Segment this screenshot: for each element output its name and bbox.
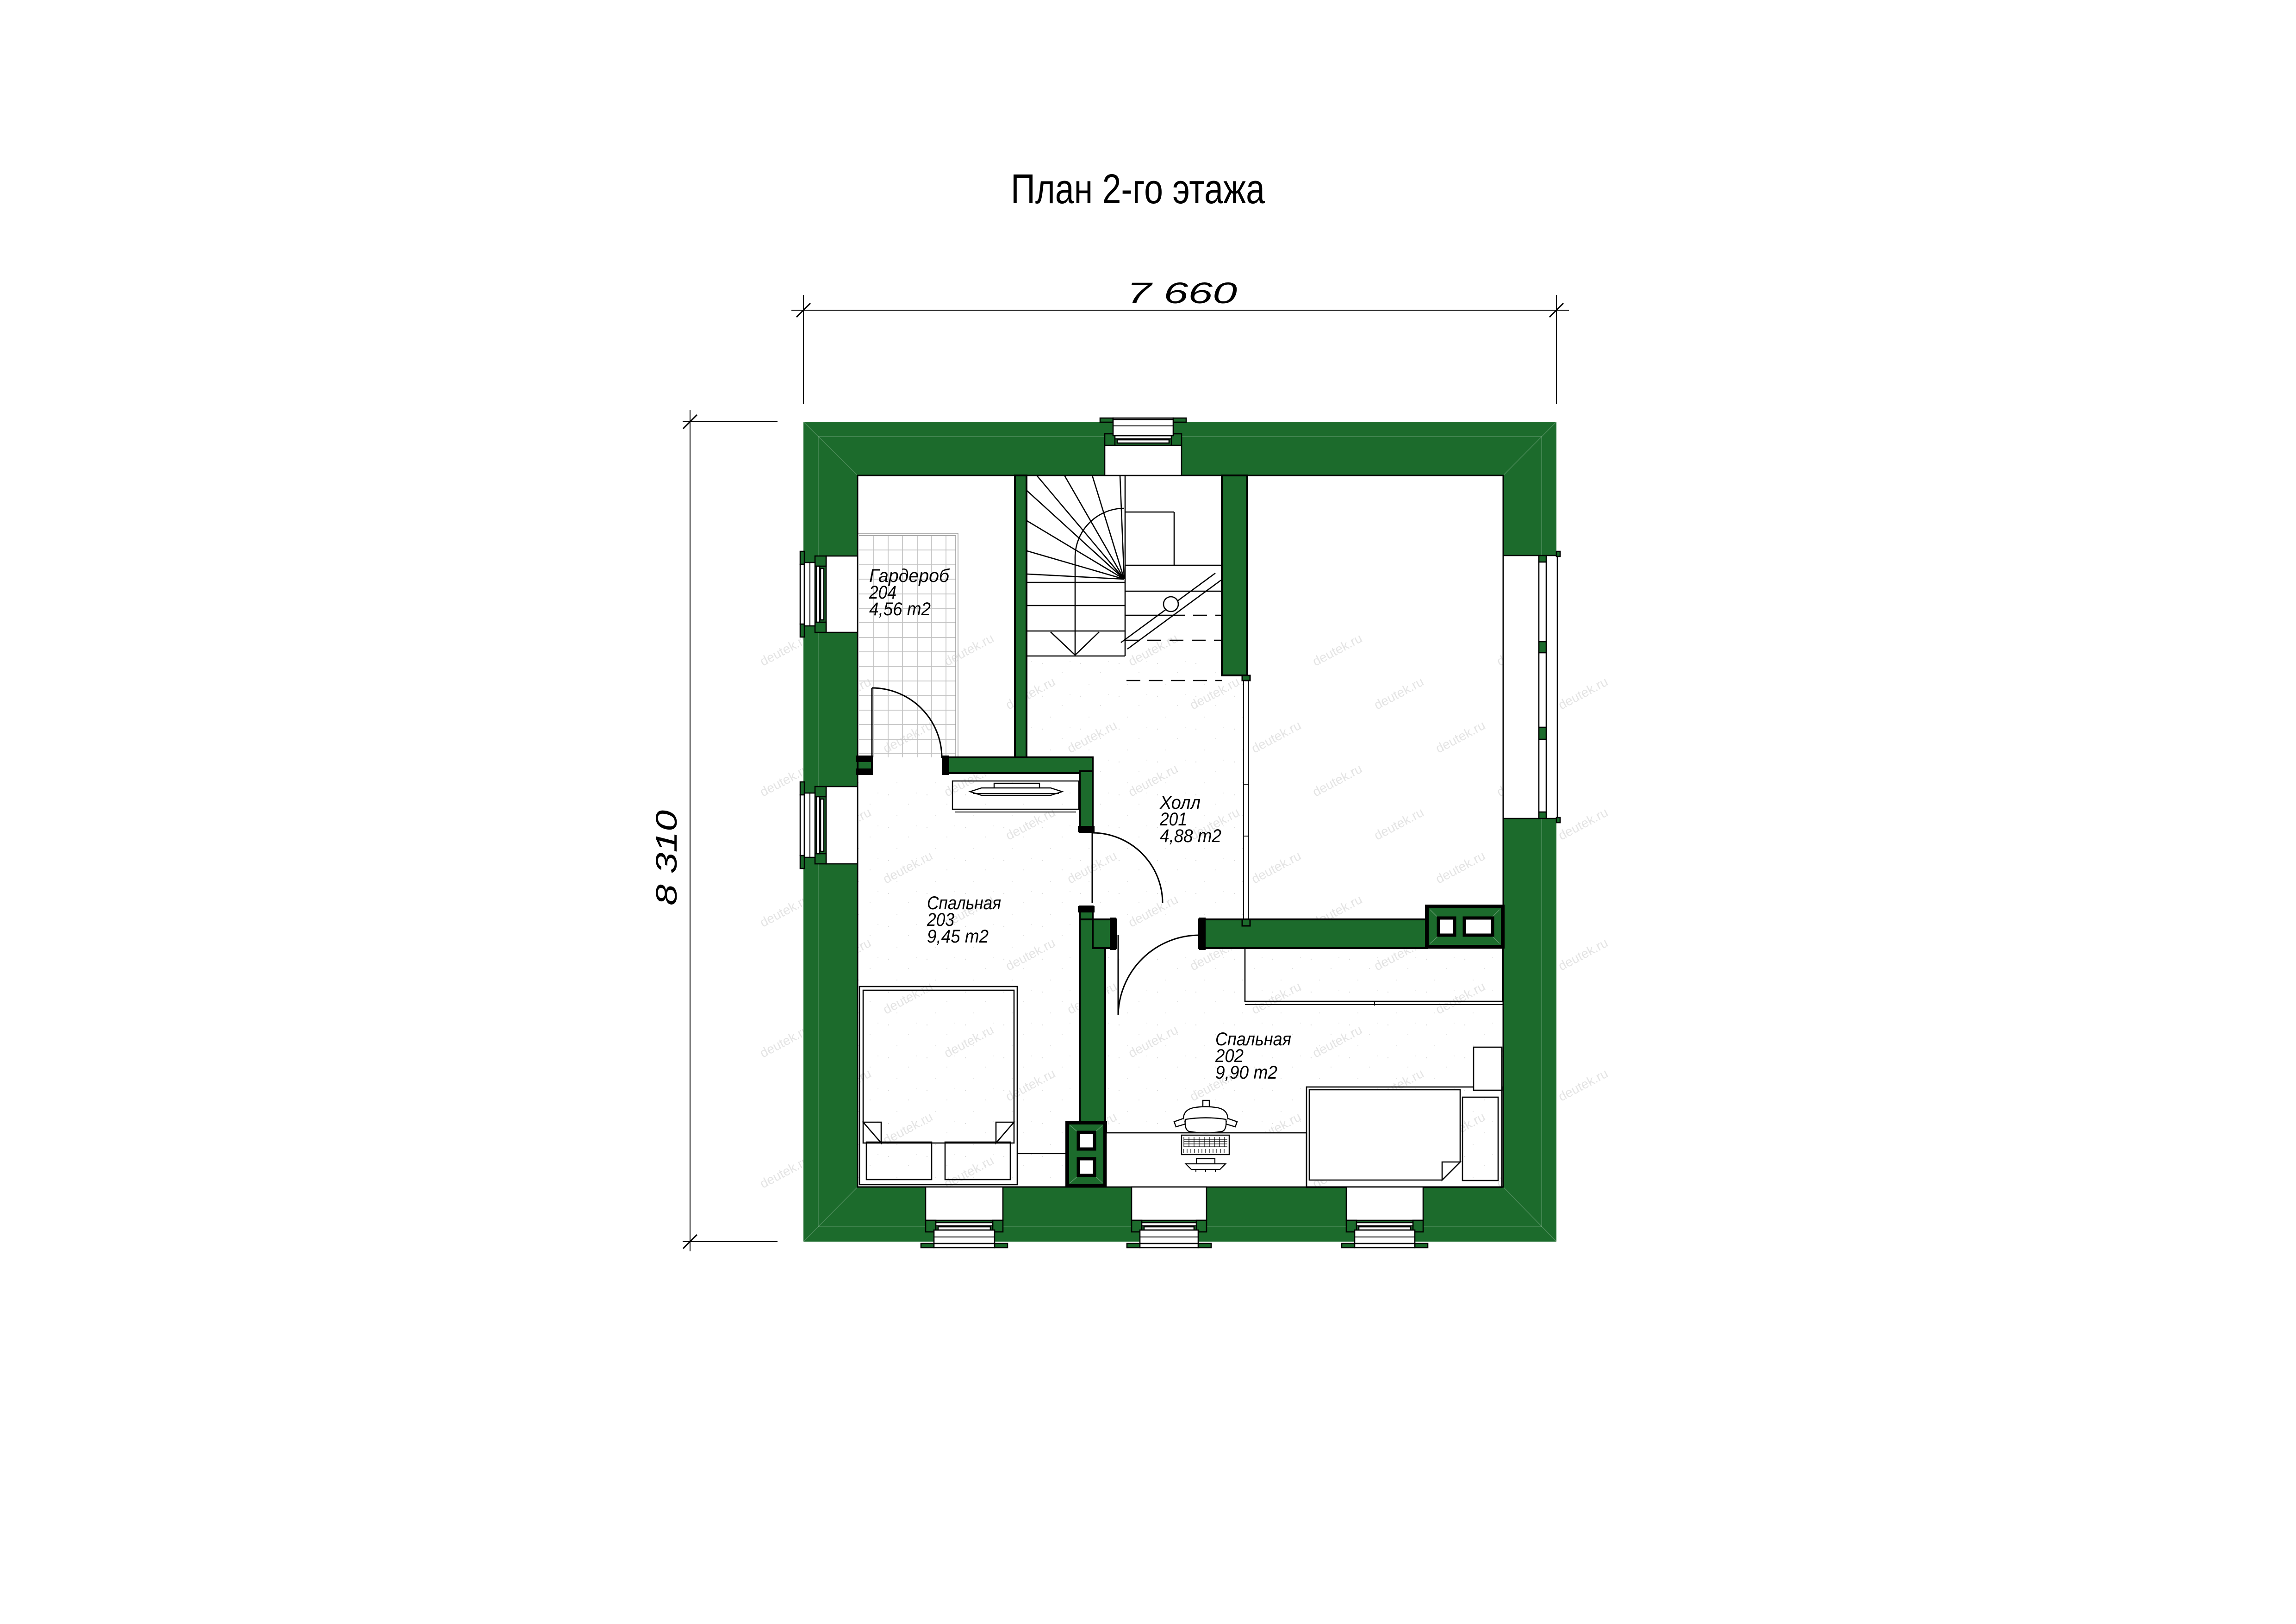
- svg-text:8 310: 8 310: [650, 810, 683, 906]
- svg-text:9,45 т2: 9,45 т2: [927, 926, 989, 947]
- svg-text:4,88 т2: 4,88 т2: [1160, 826, 1221, 846]
- svg-text:4,56 т2: 4,56 т2: [869, 599, 931, 619]
- svg-text:9,90 т2: 9,90 т2: [1215, 1062, 1277, 1083]
- svg-text:7 660: 7 660: [1127, 276, 1238, 310]
- svg-text:План 2-го этажа: План 2-го этажа: [1011, 166, 1265, 212]
